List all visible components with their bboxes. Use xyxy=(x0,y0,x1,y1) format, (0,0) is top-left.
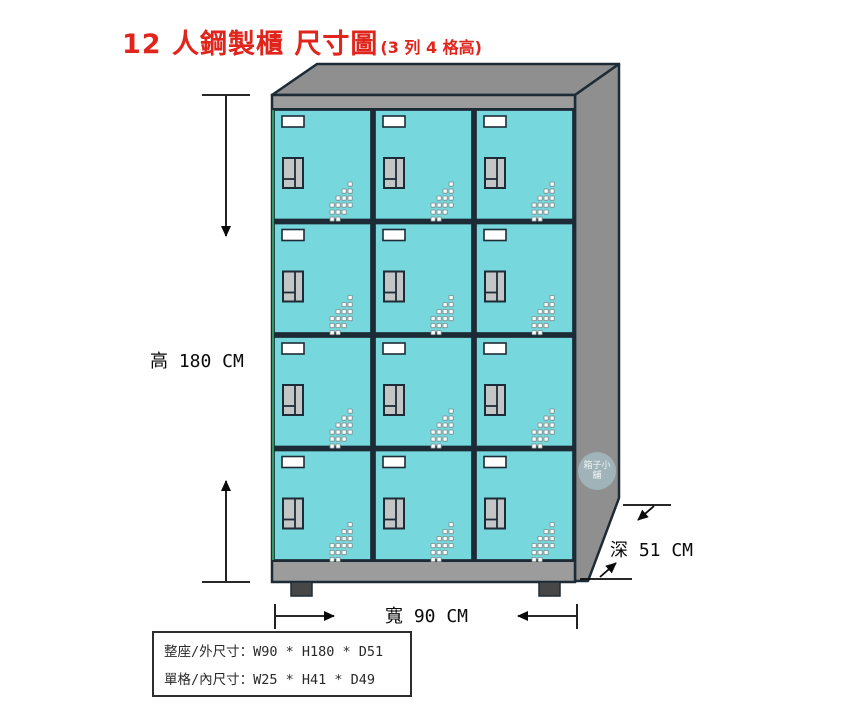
label-slot xyxy=(383,457,405,468)
foot-right xyxy=(539,582,560,596)
cabinet-side-panel xyxy=(575,64,619,581)
width-dimension-label: 寬 90 CM xyxy=(385,602,468,628)
locker-door xyxy=(274,223,372,334)
label-slot xyxy=(484,230,506,241)
locker-door xyxy=(476,110,574,221)
spec-line-cell: 單格/內尺寸：W25 * H41 * D49 xyxy=(164,668,400,688)
handle-lock xyxy=(384,499,404,529)
label-slot xyxy=(383,116,405,127)
handle-lock xyxy=(485,499,505,529)
title-main: 12 人鋼製櫃 尺寸圖 xyxy=(122,22,378,61)
locker-door xyxy=(476,337,574,448)
locker-door xyxy=(375,223,473,334)
watermark: 箱子小舖 xyxy=(578,452,616,490)
locker-door xyxy=(375,110,473,221)
label-slot xyxy=(484,343,506,354)
handle-lock xyxy=(283,272,303,302)
page-title: 12 人鋼製櫃 尺寸圖 (3 列 4 格高) xyxy=(122,22,482,61)
label-slot xyxy=(282,230,304,241)
spec-line-overall: 整座/外尺寸：W90 * H180 * D51 xyxy=(164,640,400,660)
locker-door xyxy=(274,110,372,221)
handle-lock xyxy=(485,272,505,302)
locker-door xyxy=(274,337,372,448)
depth-top-arrow xyxy=(638,506,654,520)
label-slot xyxy=(383,230,405,241)
handle-lock xyxy=(283,499,303,529)
diagram-canvas: 12 人鋼製櫃 尺寸圖 (3 列 4 格高) 高 180 CM 寬 90 CM … xyxy=(0,0,846,720)
handle-lock xyxy=(485,385,505,415)
title-sub: (3 列 4 格高) xyxy=(380,34,482,58)
handle-lock xyxy=(283,385,303,415)
label-slot xyxy=(383,343,405,354)
locker-door xyxy=(476,223,574,334)
label-slot xyxy=(484,457,506,468)
locker-door xyxy=(274,450,372,561)
handle-lock xyxy=(384,158,404,188)
depth-dimension-label: 深 51 CM xyxy=(610,536,693,562)
handle-lock xyxy=(384,272,404,302)
label-slot xyxy=(282,343,304,354)
handle-lock xyxy=(384,385,404,415)
label-slot xyxy=(484,116,506,127)
depth-bottom-arrow xyxy=(600,563,616,577)
label-slot xyxy=(282,116,304,127)
locker-door xyxy=(375,450,473,561)
door-grid xyxy=(274,110,574,562)
cabinet-top-panel xyxy=(272,64,619,95)
handle-lock xyxy=(485,158,505,188)
locker-door xyxy=(375,337,473,448)
label-slot xyxy=(282,457,304,468)
height-dimension-label: 高 180 CM xyxy=(150,347,244,373)
handle-lock xyxy=(283,158,303,188)
spec-box: 整座/外尺寸：W90 * H180 * D51 單格/內尺寸：W25 * H41… xyxy=(152,631,412,697)
height-dimension-arrows xyxy=(202,95,250,582)
locker-door xyxy=(476,450,574,561)
foot-left xyxy=(291,582,312,596)
